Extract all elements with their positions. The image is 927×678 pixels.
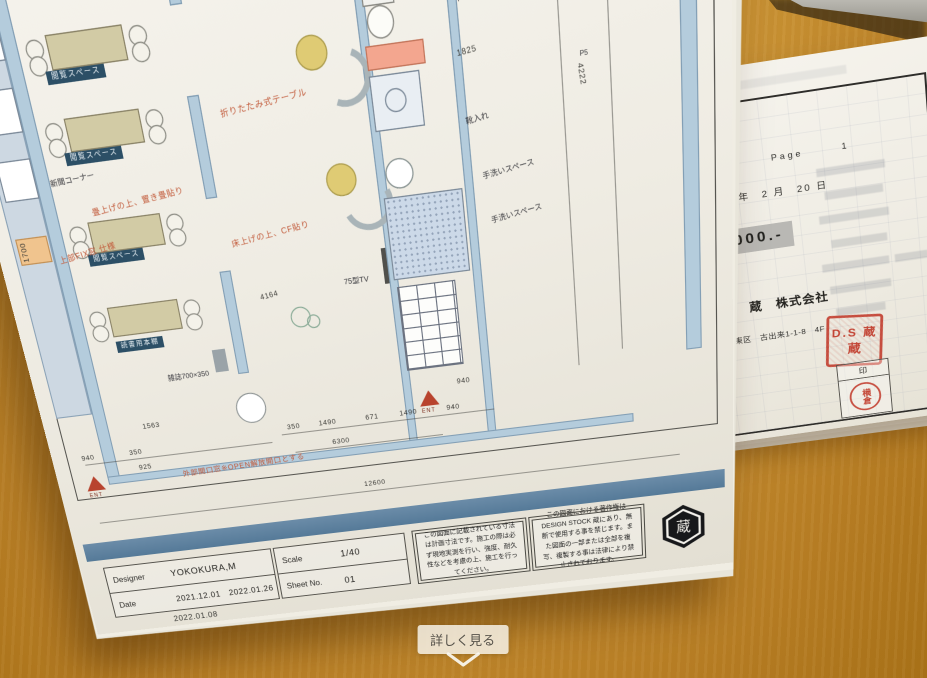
shoe-locker-grid [397, 280, 464, 371]
scale-value: 1/40 [340, 547, 361, 559]
page-number: 1 [841, 141, 847, 151]
dim-left: 925 [138, 463, 152, 472]
photo-scene: 見積書 Page 1 令和 4 年 2 月 20 日 0,000.- Desig… [0, 0, 927, 678]
dim-bottom: 940 [81, 454, 96, 463]
logo-inner-hex: 蔵 [666, 508, 701, 544]
seal-box: 印 横倉 [836, 358, 893, 419]
logo-box: 蔵 [652, 496, 715, 556]
see-details-button[interactable]: 詳しく見る [417, 625, 508, 654]
titleblock-designer-date: Designer YOKOKURA,M Date 2021.12.01 2022… [103, 548, 280, 618]
entrance-marker [84, 475, 106, 491]
designer-value: YOKOKURA,M [169, 561, 237, 578]
personal-stamp-text: 横倉 [860, 388, 870, 405]
note-text: この図面に記載されている寸法は計画寸法です。施工の際は必ず現地実測を行い、強度、… [421, 520, 522, 582]
logo-inner-ring: 蔵 [663, 506, 703, 548]
designer-label: Designer [106, 569, 171, 585]
tile-floor-area [384, 188, 471, 280]
company-seal-kanji: 蔵 [829, 339, 880, 358]
dim-bottom: 350 [128, 448, 142, 457]
seal-box-body: 横倉 [839, 375, 892, 418]
titleblock-scale-sheet: Scale 1/40 Sheet No. 01 [273, 533, 411, 599]
dim-bottom: 671 [365, 413, 379, 422]
copyright-note: この図面における著作権はDESIGN STOCK 蔵にあり、無断で使用する事を禁… [532, 507, 644, 568]
dim-bottom-overall: 12600 [364, 479, 386, 489]
chevron-down-icon[interactable] [445, 651, 481, 668]
scale-label: Scale [275, 549, 341, 565]
date-label: Date [113, 595, 178, 610]
floor-plan-sheet: 12600 室外機 室外機 室外機 室外機 [0, 0, 733, 635]
note-text: この図面における著作権はDESIGN STOCK 蔵にあり、無断で使用する事を禁… [537, 501, 637, 573]
entrance-label: ENT [89, 492, 104, 500]
sheet-no-value: 01 [344, 574, 356, 585]
company-seal-text: D.S 蔵 [829, 322, 880, 341]
dim-right: 940 [456, 376, 470, 385]
dim-bottom: 940 [446, 403, 460, 412]
entrance-marker [418, 389, 439, 406]
dimension-disclaimer-note: この図面に記載されている寸法は計画寸法です。施工の際は必ず現地実測を行い、強度、… [415, 521, 528, 581]
dim-bottom: 350 [286, 423, 300, 432]
date-value-2: 2022.01.08 [173, 610, 219, 623]
sheet-no-label: Sheet No. [280, 576, 345, 592]
personal-stamp: 横倉 [848, 380, 882, 412]
date-value: 2021.12.01 2022.01.26 [175, 583, 274, 604]
p5-label: P5 [580, 49, 589, 58]
kura-logo-icon: 蔵 [659, 501, 708, 551]
logo-kanji: 蔵 [676, 516, 691, 537]
